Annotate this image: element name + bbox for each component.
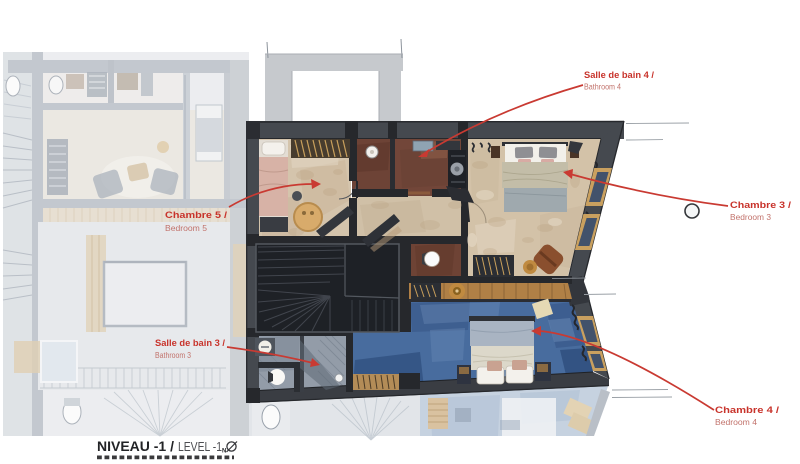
svg-text:Chambre 4 /: Chambre 4 / [715,405,780,415]
svg-text:Salle de bain 4 /: Salle de bain 4 / [584,70,654,80]
svg-text:Bedroom 5: Bedroom 5 [165,223,207,233]
svg-text:N: N [222,449,226,455]
svg-text:NIVEAU -1 /: NIVEAU -1 / [97,439,174,454]
svg-text:LEVEL -1: LEVEL -1 [178,439,222,454]
svg-text:Bedroom 4: Bedroom 4 [715,417,757,427]
svg-text:Salle de bain 3 /: Salle de bain 3 / [155,338,225,348]
svg-text:Chambre 5 /: Chambre 5 / [165,210,228,220]
svg-text:Chambre 3 /: Chambre 3 / [730,200,792,210]
svg-text:Bathroom 4: Bathroom 4 [584,82,621,92]
svg-text:Bedroom 3: Bedroom 3 [730,212,771,222]
svg-text:Bathroom 3: Bathroom 3 [155,350,191,360]
